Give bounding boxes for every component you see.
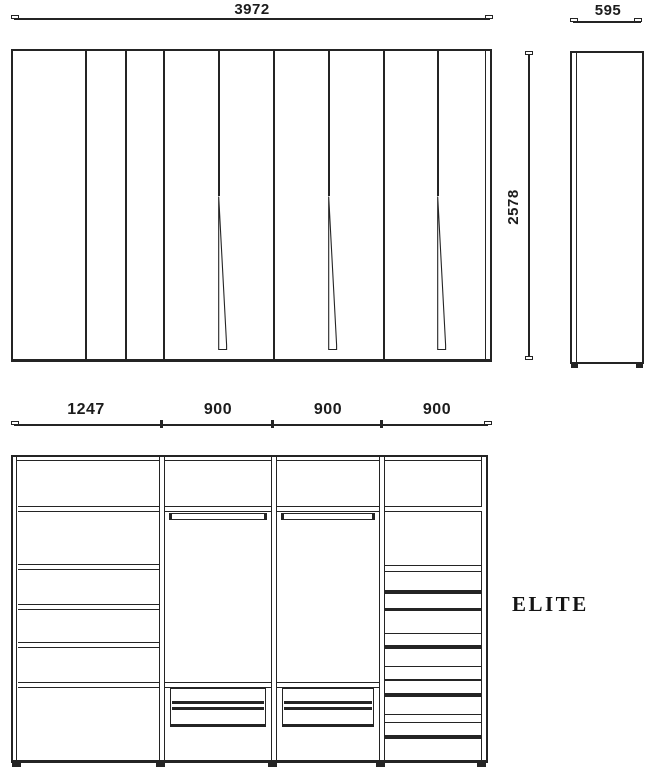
dimension-end-tick <box>525 356 533 360</box>
cabinet-foot <box>12 763 21 767</box>
door-divider <box>328 51 330 196</box>
dimension-mid-tick <box>160 420 163 428</box>
side-width-dimension-label: 595 <box>586 2 630 19</box>
front-right-panel-edge <box>485 51 486 359</box>
partition-panel <box>271 457 277 760</box>
brand-name: ELITE <box>512 592 589 617</box>
height-dimension-label-wrap: 2578 <box>494 186 532 228</box>
front-width-dimension-line <box>14 18 490 20</box>
door-divider <box>85 51 87 360</box>
front-view <box>11 49 492 362</box>
shelf <box>18 564 159 570</box>
drawer-front-edge <box>284 707 372 710</box>
dimension-end-tick <box>634 18 642 22</box>
shelf <box>165 506 271 512</box>
drawer-front-edge <box>385 608 482 611</box>
dimension-end-tick <box>485 15 493 19</box>
door-divider <box>383 51 385 360</box>
side-view <box>570 51 644 364</box>
cabinet-foot <box>571 364 578 368</box>
shelf <box>18 682 159 688</box>
drawer-line <box>385 633 482 634</box>
front-width-dimension-label: 3972 <box>230 1 274 18</box>
door-divider <box>218 51 220 196</box>
drawer-line <box>385 571 482 572</box>
technical-drawing-canvas: 3972 2578 595 1247 900 900 900 <box>0 0 654 778</box>
rail-end-bracket <box>169 513 172 520</box>
dimension-end-tick <box>484 421 492 425</box>
drawer-front-edge <box>385 679 482 681</box>
shelf <box>165 682 271 688</box>
shelf <box>277 506 379 512</box>
front-height-dimension-label: 2578 <box>505 189 522 224</box>
cabinet-foot <box>156 763 165 767</box>
dimension-mid-tick <box>271 420 274 428</box>
section-dimension-label: 900 <box>407 401 467 419</box>
section-dimension-label: 900 <box>188 401 248 419</box>
cabinet-foot <box>376 763 385 767</box>
partition-panel <box>159 457 165 760</box>
drawer-front-edge <box>385 693 482 697</box>
drawer-line <box>385 565 482 566</box>
shelf <box>18 642 159 648</box>
dimension-end-tick <box>11 15 19 19</box>
drawer-front-edge <box>385 735 482 739</box>
dimension-end-tick <box>11 421 19 425</box>
cabinet-foot <box>268 763 277 767</box>
hanging-rail <box>281 513 375 520</box>
door-divider <box>125 51 127 360</box>
door-divider <box>273 51 275 360</box>
rail-end-bracket <box>281 513 284 520</box>
section-dimension-label: 1247 <box>56 401 116 419</box>
shelf <box>18 506 159 512</box>
cabinet-foot <box>636 364 643 368</box>
rail-end-bracket <box>264 513 267 520</box>
rail-end-bracket <box>372 513 375 520</box>
drawer-front-edge <box>385 590 482 594</box>
drawer-front-edge <box>172 701 264 704</box>
drawer-front-edge <box>172 707 264 710</box>
drawer-line <box>385 666 482 667</box>
side-door-edge-line <box>576 53 577 362</box>
section-dimension-label: 900 <box>298 401 358 419</box>
dimension-end-tick <box>525 51 533 55</box>
cabinet-foot <box>477 763 486 767</box>
hanging-rail <box>169 513 267 520</box>
door-divider <box>163 51 165 360</box>
drawer-line <box>385 714 482 715</box>
side-width-dimension-line <box>573 21 641 23</box>
drawer-line <box>385 722 482 723</box>
internal-dimension-line <box>14 424 488 426</box>
door-handle-icon <box>328 196 338 351</box>
top-panel-inner-line <box>17 460 482 461</box>
drawer-front-edge <box>284 701 372 704</box>
left-panel-inner-line <box>16 457 17 760</box>
door-handle-icon <box>437 196 447 351</box>
dimension-mid-tick <box>380 420 383 428</box>
shelf <box>18 604 159 610</box>
shelf <box>385 506 482 512</box>
door-handle-icon <box>218 196 228 351</box>
shelf <box>277 682 379 688</box>
dimension-end-tick <box>570 18 578 22</box>
door-divider <box>437 51 439 196</box>
drawer-front-edge <box>385 645 482 649</box>
